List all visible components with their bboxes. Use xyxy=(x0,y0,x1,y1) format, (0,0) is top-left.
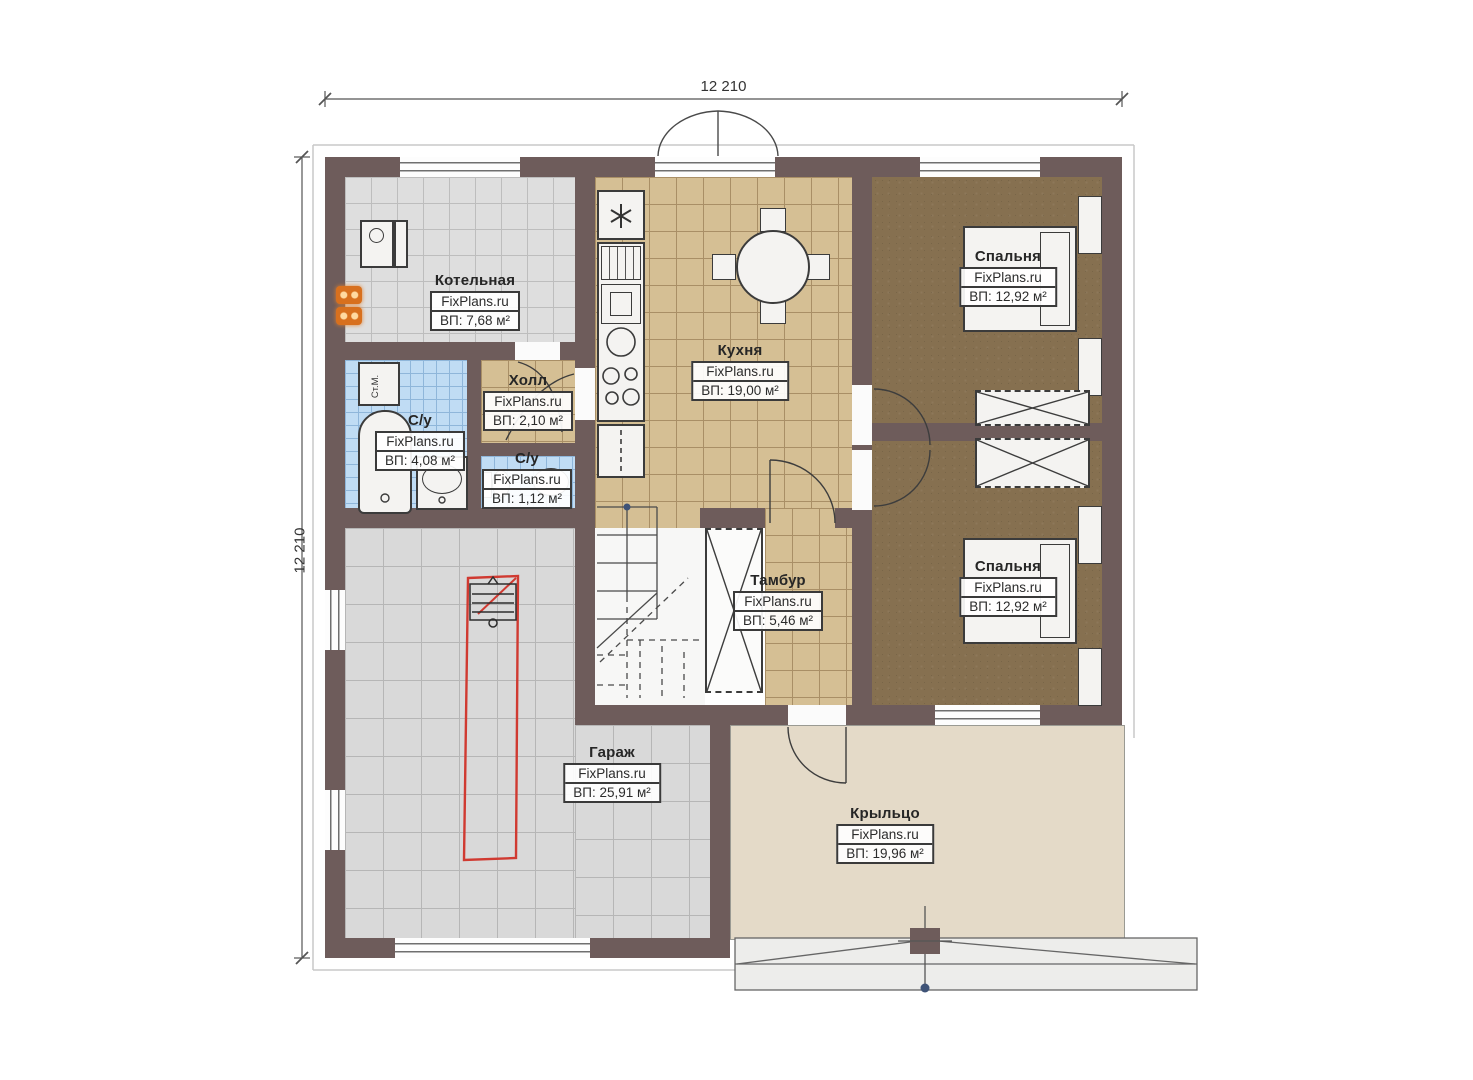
nightstand xyxy=(1078,196,1102,254)
stairwell-floor xyxy=(595,528,705,705)
dimension-left: 12 210 xyxy=(292,506,309,596)
door-opening-bedroom1 xyxy=(852,385,872,445)
room-label-tambour: Тамбур FixPlans.ruВП: 5,46 м² xyxy=(733,572,823,631)
room-name: Спальня xyxy=(975,558,1041,575)
floor-plan: Ст.М. xyxy=(0,0,1473,1080)
window-garage-left-1 xyxy=(325,590,345,650)
room-name: Крыльцо xyxy=(850,805,920,822)
door-opening-boiler-hall xyxy=(515,342,560,360)
oven-door xyxy=(610,292,632,316)
room-label-porch: Крыльцо FixPlans.ruВП: 19,96 м² xyxy=(836,805,934,864)
room-label-bedroom1: Спальня FixPlans.ruВП: 12,92 м² xyxy=(959,248,1057,307)
window-bedroom1 xyxy=(920,157,1040,177)
kitchen-cabinet xyxy=(597,424,645,478)
door-opening-hall-kitchen xyxy=(575,368,595,420)
window-boiler xyxy=(400,157,520,177)
wall-boiler-bath xyxy=(345,342,515,360)
chair xyxy=(760,208,786,232)
washing-machine-label: Ст.М. xyxy=(370,375,381,398)
door-opening-bedroom2 xyxy=(852,450,872,510)
room-name: С/у xyxy=(408,412,432,429)
window-bedroom2 xyxy=(935,705,1040,725)
room-area: ВП: 19,00 м² xyxy=(693,382,787,399)
wall-kitchen-tambour-stub xyxy=(835,508,852,528)
room-area: ВП: 4,08 м² xyxy=(377,452,463,469)
boiler-unit-panel xyxy=(394,220,408,268)
room-label-bedroom2: Спальня FixPlans.ruВП: 12,92 м² xyxy=(959,558,1057,617)
room-area: ВП: 5,46 м² xyxy=(735,612,821,629)
room-label-bath1: С/у FixPlans.ruВП: 4,08 м² xyxy=(375,412,465,471)
brand-watermark: FixPlans.ru xyxy=(565,765,659,784)
room-name: С/у xyxy=(515,450,539,467)
room-label-bath2: С/у FixPlans.ruВП: 1,12 м² xyxy=(482,450,572,509)
brand-watermark: FixPlans.ru xyxy=(961,579,1055,598)
room-area: ВП: 1,12 м² xyxy=(484,490,570,507)
room-area: ВП: 2,10 м² xyxy=(485,412,571,429)
wall-bath1-hall xyxy=(467,360,481,508)
boiler-dial xyxy=(369,228,384,243)
wardrobe xyxy=(975,438,1090,488)
brand-watermark: FixPlans.ru xyxy=(735,593,821,612)
nightstand xyxy=(1078,506,1102,564)
window-entry-top xyxy=(655,157,775,177)
nightstand xyxy=(1078,648,1102,706)
wall-kitchen-closet xyxy=(700,508,765,528)
garage-door xyxy=(395,938,590,958)
brand-watermark: FixPlans.ru xyxy=(693,363,787,382)
room-name: Кухня xyxy=(718,342,763,359)
brand-watermark: FixPlans.ru xyxy=(432,293,518,312)
nightstand xyxy=(1078,338,1102,396)
wall-kitchen-left xyxy=(575,177,595,525)
window-garage-left-2 xyxy=(325,790,345,850)
room-name: Котельная xyxy=(435,272,515,289)
entry-door-arcs xyxy=(658,111,778,156)
wall-stairs-bottom xyxy=(575,705,730,725)
brand-watermark: FixPlans.ru xyxy=(838,826,932,845)
brand-watermark: FixPlans.ru xyxy=(485,393,571,412)
brand-watermark: FixPlans.ru xyxy=(484,471,570,490)
door-opening-porch xyxy=(788,705,846,725)
radiator-icon xyxy=(336,307,362,325)
room-label-hall: Холл FixPlans.ruВП: 2,10 м² xyxy=(483,372,573,431)
room-area: ВП: 12,92 м² xyxy=(961,288,1055,305)
chair xyxy=(712,254,736,280)
room-label-kitchen: Кухня FixPlans.ruВП: 19,00 м² xyxy=(691,342,789,401)
room-label-boiler: Котельная FixPlans.ruВП: 7,68 м² xyxy=(430,272,520,331)
wall-kitchen-bedrooms-lower xyxy=(852,510,872,725)
wall-garage-porch xyxy=(710,725,730,938)
room-area: ВП: 12,92 м² xyxy=(961,598,1055,615)
wardrobe xyxy=(975,390,1090,426)
radiator-icon xyxy=(336,286,362,304)
wall-stairs-left xyxy=(575,525,595,705)
fridge xyxy=(597,190,645,240)
room-name: Спальня xyxy=(975,248,1041,265)
room-name: Гараж xyxy=(589,744,635,761)
dining-table xyxy=(736,230,810,304)
kitchen-drawers xyxy=(601,246,641,280)
wall-exterior-right xyxy=(1102,157,1122,725)
wall-boiler-bath-stub xyxy=(560,342,575,360)
room-garage-floor-left xyxy=(345,528,575,938)
room-name: Тамбур xyxy=(750,572,806,589)
room-area: ВП: 7,68 м² xyxy=(432,312,518,329)
room-area: ВП: 25,91 м² xyxy=(565,784,659,801)
brand-watermark: FixPlans.ru xyxy=(377,433,463,452)
room-name: Холл xyxy=(509,372,547,389)
room-area: ВП: 19,96 м² xyxy=(838,845,932,862)
wall-kitchen-bedrooms-upper xyxy=(852,177,872,385)
dimension-top: 12 210 xyxy=(325,78,1122,95)
room-label-garage: Гараж FixPlans.ruВП: 25,91 м² xyxy=(563,744,661,803)
brand-watermark: FixPlans.ru xyxy=(961,269,1055,288)
